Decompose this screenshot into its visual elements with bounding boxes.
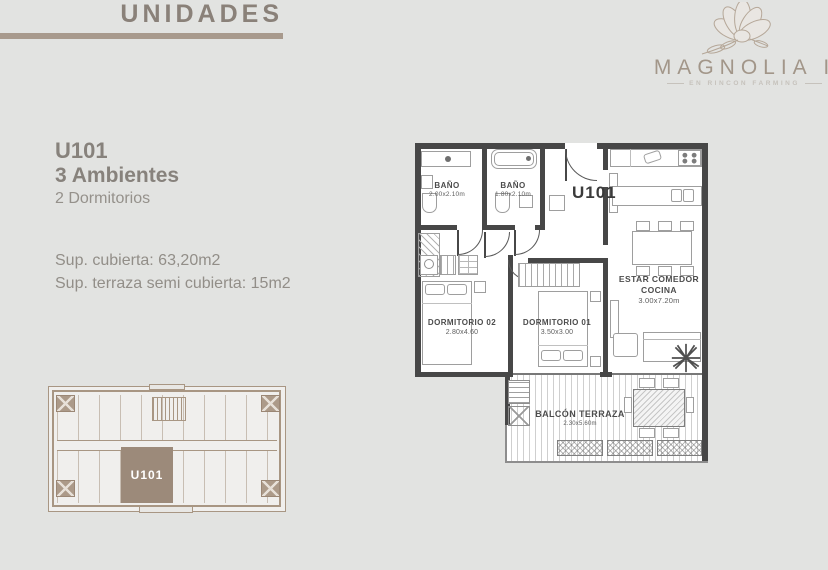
living-dims: 3.00x7.20m <box>638 296 679 305</box>
outdoor-table <box>633 389 685 427</box>
dorm1-blanket-line <box>538 345 588 346</box>
wall-bath2-right <box>540 143 545 230</box>
page-title: UNIDADES <box>0 0 283 29</box>
living-label-1: ESTAR COMEDOR <box>619 274 699 284</box>
outdoor-chair <box>639 378 655 388</box>
balcony-rail-bottom <box>505 461 708 463</box>
title-underline <box>0 33 283 39</box>
keyplan-bottom-notch <box>139 506 193 513</box>
wall-bath2-bottom <box>483 225 515 230</box>
stove-icon <box>678 150 701 166</box>
ac-unit <box>508 380 530 404</box>
dining-table <box>632 231 692 265</box>
wall-right <box>702 143 708 463</box>
island-sink-left <box>671 189 682 202</box>
planter <box>657 440 702 456</box>
brand-name: MAGNOLIA I <box>652 56 828 80</box>
dorm1-label: DORMITORIO 01 <box>523 318 591 327</box>
bath2-dims: 1.80x2.10m <box>495 191 531 198</box>
sliding-glass-bedroom <box>510 373 600 375</box>
sofa-back-line <box>643 339 701 340</box>
tagline-rule-left <box>667 83 684 84</box>
dining-chair <box>636 221 650 231</box>
keyplan-highlighted-unit: U101 <box>121 447 173 503</box>
balcony-dims: 2.30x5.60m <box>563 421 596 427</box>
keyplan-top-notch <box>149 384 185 390</box>
unit-covered-area: Sup. cubierta: 63,20m2 <box>55 252 220 270</box>
bath1-dims: 2.00x2.10m <box>429 191 465 198</box>
hall-cabinet <box>549 195 565 211</box>
dorm1-nightstand <box>590 356 601 367</box>
brochure-page: UNIDADES MAGNOLIA I EN RINCON FARMIN <box>0 0 828 570</box>
dorm1-dims: 3.50x3.00 <box>541 329 574 336</box>
magnolia-flower-icon <box>682 2 802 63</box>
bath1-label: BAÑO <box>434 181 459 190</box>
planter <box>557 440 603 456</box>
wall-bath-divider <box>482 143 487 230</box>
brand-tagline-text: EN RINCON FARMING <box>689 80 800 87</box>
dorm2-pillow <box>447 284 467 295</box>
unit-type: 3 Ambientes <box>55 164 179 188</box>
appliance-cooktop <box>458 255 478 275</box>
keyplan-core-icon <box>261 480 280 497</box>
dorm1-pillow <box>541 350 561 361</box>
keyplan-core-icon <box>56 480 75 497</box>
keyplan-core-icon <box>56 395 75 412</box>
bath2-faucet <box>526 156 531 161</box>
floorplan: BAÑO 2.00x2.10m BAÑO 1.80x2.10m U101 DOR… <box>405 133 727 473</box>
dining-chair <box>658 221 672 231</box>
armchair <box>613 333 638 357</box>
dorm2-label: DORMITORIO 02 <box>428 318 496 327</box>
washer-drum-icon <box>424 259 434 269</box>
tagline-rule-right <box>805 83 822 84</box>
dorm1-pillow <box>563 350 583 361</box>
dorm2-pillow <box>425 284 445 295</box>
dining-chair <box>680 221 694 231</box>
brand-tagline: EN RINCON FARMING <box>667 80 822 87</box>
unit-id: U101 <box>55 138 108 164</box>
wall-bottom-bedroom <box>415 372 510 377</box>
unit-terrace-area: Sup. terraza semi cubierta: 15m2 <box>55 275 291 293</box>
appliance-dishwasher <box>440 255 456 275</box>
keyplan-unit-label: U101 <box>131 468 164 482</box>
keyplan-core-icon <box>261 395 280 412</box>
keyplan: U101 <box>48 386 286 512</box>
dorm2-blanket-line <box>422 303 472 304</box>
ac-base <box>508 406 530 426</box>
outdoor-chair <box>686 397 694 413</box>
wall-bath1-bottom <box>415 225 457 230</box>
balcony-label: BALCÓN TERRAZA <box>535 409 625 419</box>
bath1-faucet <box>445 156 451 162</box>
island-sink-right <box>683 189 694 202</box>
dorm1-wardrobe <box>518 263 580 287</box>
outdoor-chair <box>639 428 655 438</box>
counter-divider <box>630 149 631 167</box>
dorm2-nightstand <box>474 281 486 293</box>
wall-entry-a <box>603 143 608 170</box>
keyplan-stairs <box>152 397 186 421</box>
living-label-2: COCINA <box>641 285 677 295</box>
balcony-rail-left <box>505 425 507 463</box>
outdoor-chair <box>663 428 679 438</box>
outdoor-chair <box>663 378 679 388</box>
bath1-basin <box>421 175 433 189</box>
planter <box>607 440 653 456</box>
dorm2-dims: 2.80x4.60 <box>446 329 479 336</box>
bath2-label: BAÑO <box>500 181 525 190</box>
plan-unit-label: U101 <box>572 183 617 203</box>
wall-dorm1-right <box>603 258 608 377</box>
plant-icon <box>669 341 703 380</box>
unit-bedrooms: 2 Dormitorios <box>55 190 150 208</box>
dorm1-nightstand <box>590 291 601 302</box>
